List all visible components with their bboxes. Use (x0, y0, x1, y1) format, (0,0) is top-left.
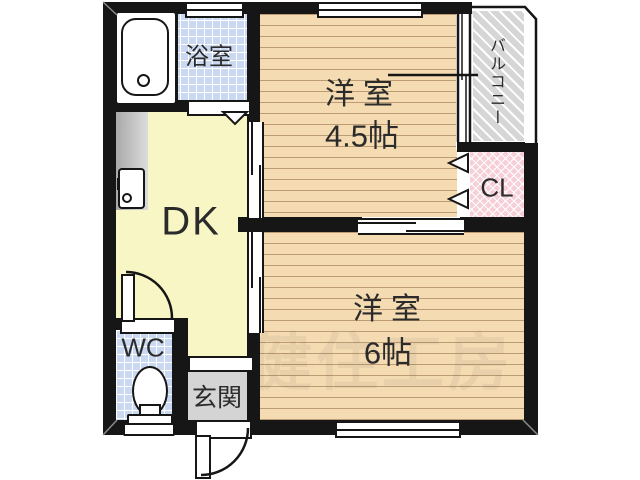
label-closet: CL (480, 173, 513, 204)
label-balcony: バルコニー (483, 37, 507, 127)
front-door-swing-arc (201, 428, 248, 475)
label-wc: WC (121, 333, 164, 364)
label-west-room1: 洋室 (325, 69, 401, 113)
closet-door-triangle-bottom (449, 190, 468, 208)
wc-door-swing-arc (126, 272, 172, 318)
closet-door-triangle-top (449, 154, 468, 172)
watermark: 健住工房 (250, 312, 514, 402)
balcony-window-frame (388, 14, 478, 142)
label-bathroom: 浴室 (185, 37, 233, 72)
label-entrance: 玄関 (192, 378, 242, 414)
bathroom-door-swing-triangle (223, 112, 247, 124)
label-dk: DK (161, 200, 221, 245)
plan-symbols-overlay (0, 0, 640, 480)
label-west-room1-size: 4.5帖 (325, 111, 399, 156)
floorplan: 浴室 DK WC 玄関 CL バルコニー 洋室 4.5帖 洋室 6帖 健住工房 (0, 0, 640, 480)
